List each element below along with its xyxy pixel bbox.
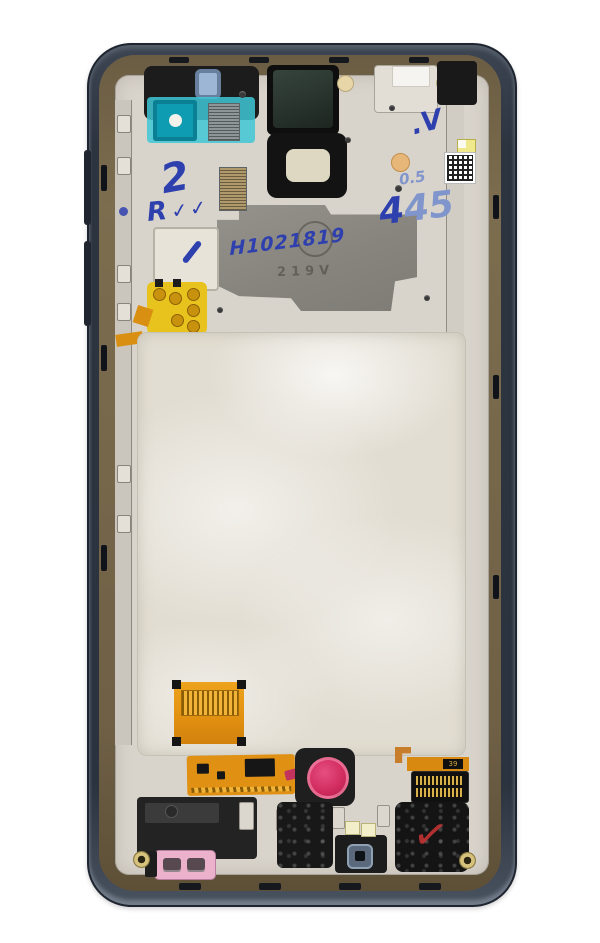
screw-hole [389, 105, 395, 111]
sim-slot [163, 858, 181, 872]
sim-slot [187, 858, 205, 872]
dark-screw [165, 805, 178, 818]
rail-spring-contact [117, 115, 131, 133]
contact-core [458, 140, 466, 148]
top-right-black-module [437, 61, 477, 105]
bracket-stamped-area [145, 803, 219, 823]
volume-button-side [84, 150, 91, 225]
button-flex-cable [147, 282, 207, 334]
flex-component [173, 279, 181, 287]
display-flex-cable [174, 682, 244, 744]
screw-hole [239, 91, 246, 98]
red-check-mark: ✓ [409, 807, 452, 861]
rim-clip-slot [493, 375, 499, 399]
connector-pin-row [416, 776, 462, 785]
led-contact-pad [345, 821, 360, 835]
mark-445-light-digits: 45 [402, 184, 457, 231]
rail-spring-contact [117, 265, 131, 283]
white-label-sticker [392, 66, 430, 87]
rim-clip-slot [493, 575, 499, 599]
board-to-board-connector [411, 771, 469, 803]
blue-ink-dot [119, 207, 128, 216]
button-hole [355, 851, 365, 861]
sim-tray-pink [154, 850, 216, 880]
camera-grommet [195, 69, 221, 99]
mesh-grille [208, 103, 240, 141]
brass-screw [459, 852, 476, 869]
bezel-clip [179, 883, 201, 890]
screw-hole [424, 295, 430, 301]
gold-contact-pad [153, 288, 166, 301]
gold-mesh-grille [219, 167, 247, 211]
ic-chip [197, 764, 209, 774]
connector-flex: 39 [407, 757, 469, 771]
right-speaker-enclosure: ✓ [395, 802, 469, 872]
connector-pin-row [416, 788, 462, 797]
power-button-side [84, 241, 91, 326]
rail-spring-contact [117, 303, 131, 321]
screw-hole [345, 137, 351, 143]
metal-tab [332, 807, 345, 829]
adhesive-dot [337, 75, 354, 92]
ic-chip [217, 771, 225, 779]
bezel-clip [409, 57, 429, 63]
connector-label: 39 [443, 759, 463, 769]
bezel-clip [419, 883, 441, 890]
bezel-clip [249, 57, 269, 63]
gold-contact-pad [187, 304, 200, 317]
rail-spring-contact [117, 157, 131, 175]
gold-contact-pad [169, 292, 182, 305]
bottom-speaker-module [277, 802, 333, 868]
flex-component [155, 279, 163, 287]
bezel-clip [259, 883, 281, 890]
led-contact-pad [361, 823, 376, 837]
metal-tab [239, 802, 254, 830]
photo-canvas: H1021819 219V 2 R ✓✓ .V 0.5 445 [0, 0, 600, 943]
fingerprint-sensor [307, 757, 349, 799]
left-inner-rail [115, 100, 132, 745]
phone-frame-outer-rim: H1021819 219V 2 R ✓✓ .V 0.5 445 [87, 43, 517, 907]
handwritten-mark-r: R [145, 196, 168, 228]
rim-clip-slot [493, 195, 499, 219]
handwritten-mark-05: 0.5 [398, 167, 427, 189]
pcb-contact-pads [191, 786, 291, 793]
bezel-clip [169, 57, 189, 63]
bezel-clip [329, 57, 349, 63]
bezel-clip [339, 883, 361, 890]
sub-pcb [187, 754, 296, 796]
front-camera-lens-hole [169, 114, 182, 127]
proximity-sensor-window [273, 70, 333, 128]
rim-clip-slot [101, 545, 107, 571]
screw-hole [217, 307, 223, 313]
ribbon-corner-tab [172, 737, 181, 746]
brass-screw [133, 851, 150, 868]
connector-fingers [181, 690, 239, 716]
qr-code-sticker [445, 153, 475, 183]
rim-clip-slot [101, 345, 107, 371]
rim-clip-slot [101, 165, 107, 191]
earpiece-opening [286, 149, 330, 182]
ribbon-corner-tab [172, 680, 181, 689]
rail-spring-contact [117, 515, 131, 533]
metal-tab [377, 805, 390, 827]
gold-contact-pad [171, 314, 184, 327]
ribbon-corner-tab [237, 680, 246, 689]
rail-spring-contact [117, 465, 131, 483]
ribbon-corner-tab [237, 737, 246, 746]
gold-contact-pad [187, 288, 200, 301]
ic-chip [245, 758, 275, 777]
button-well [347, 844, 373, 869]
